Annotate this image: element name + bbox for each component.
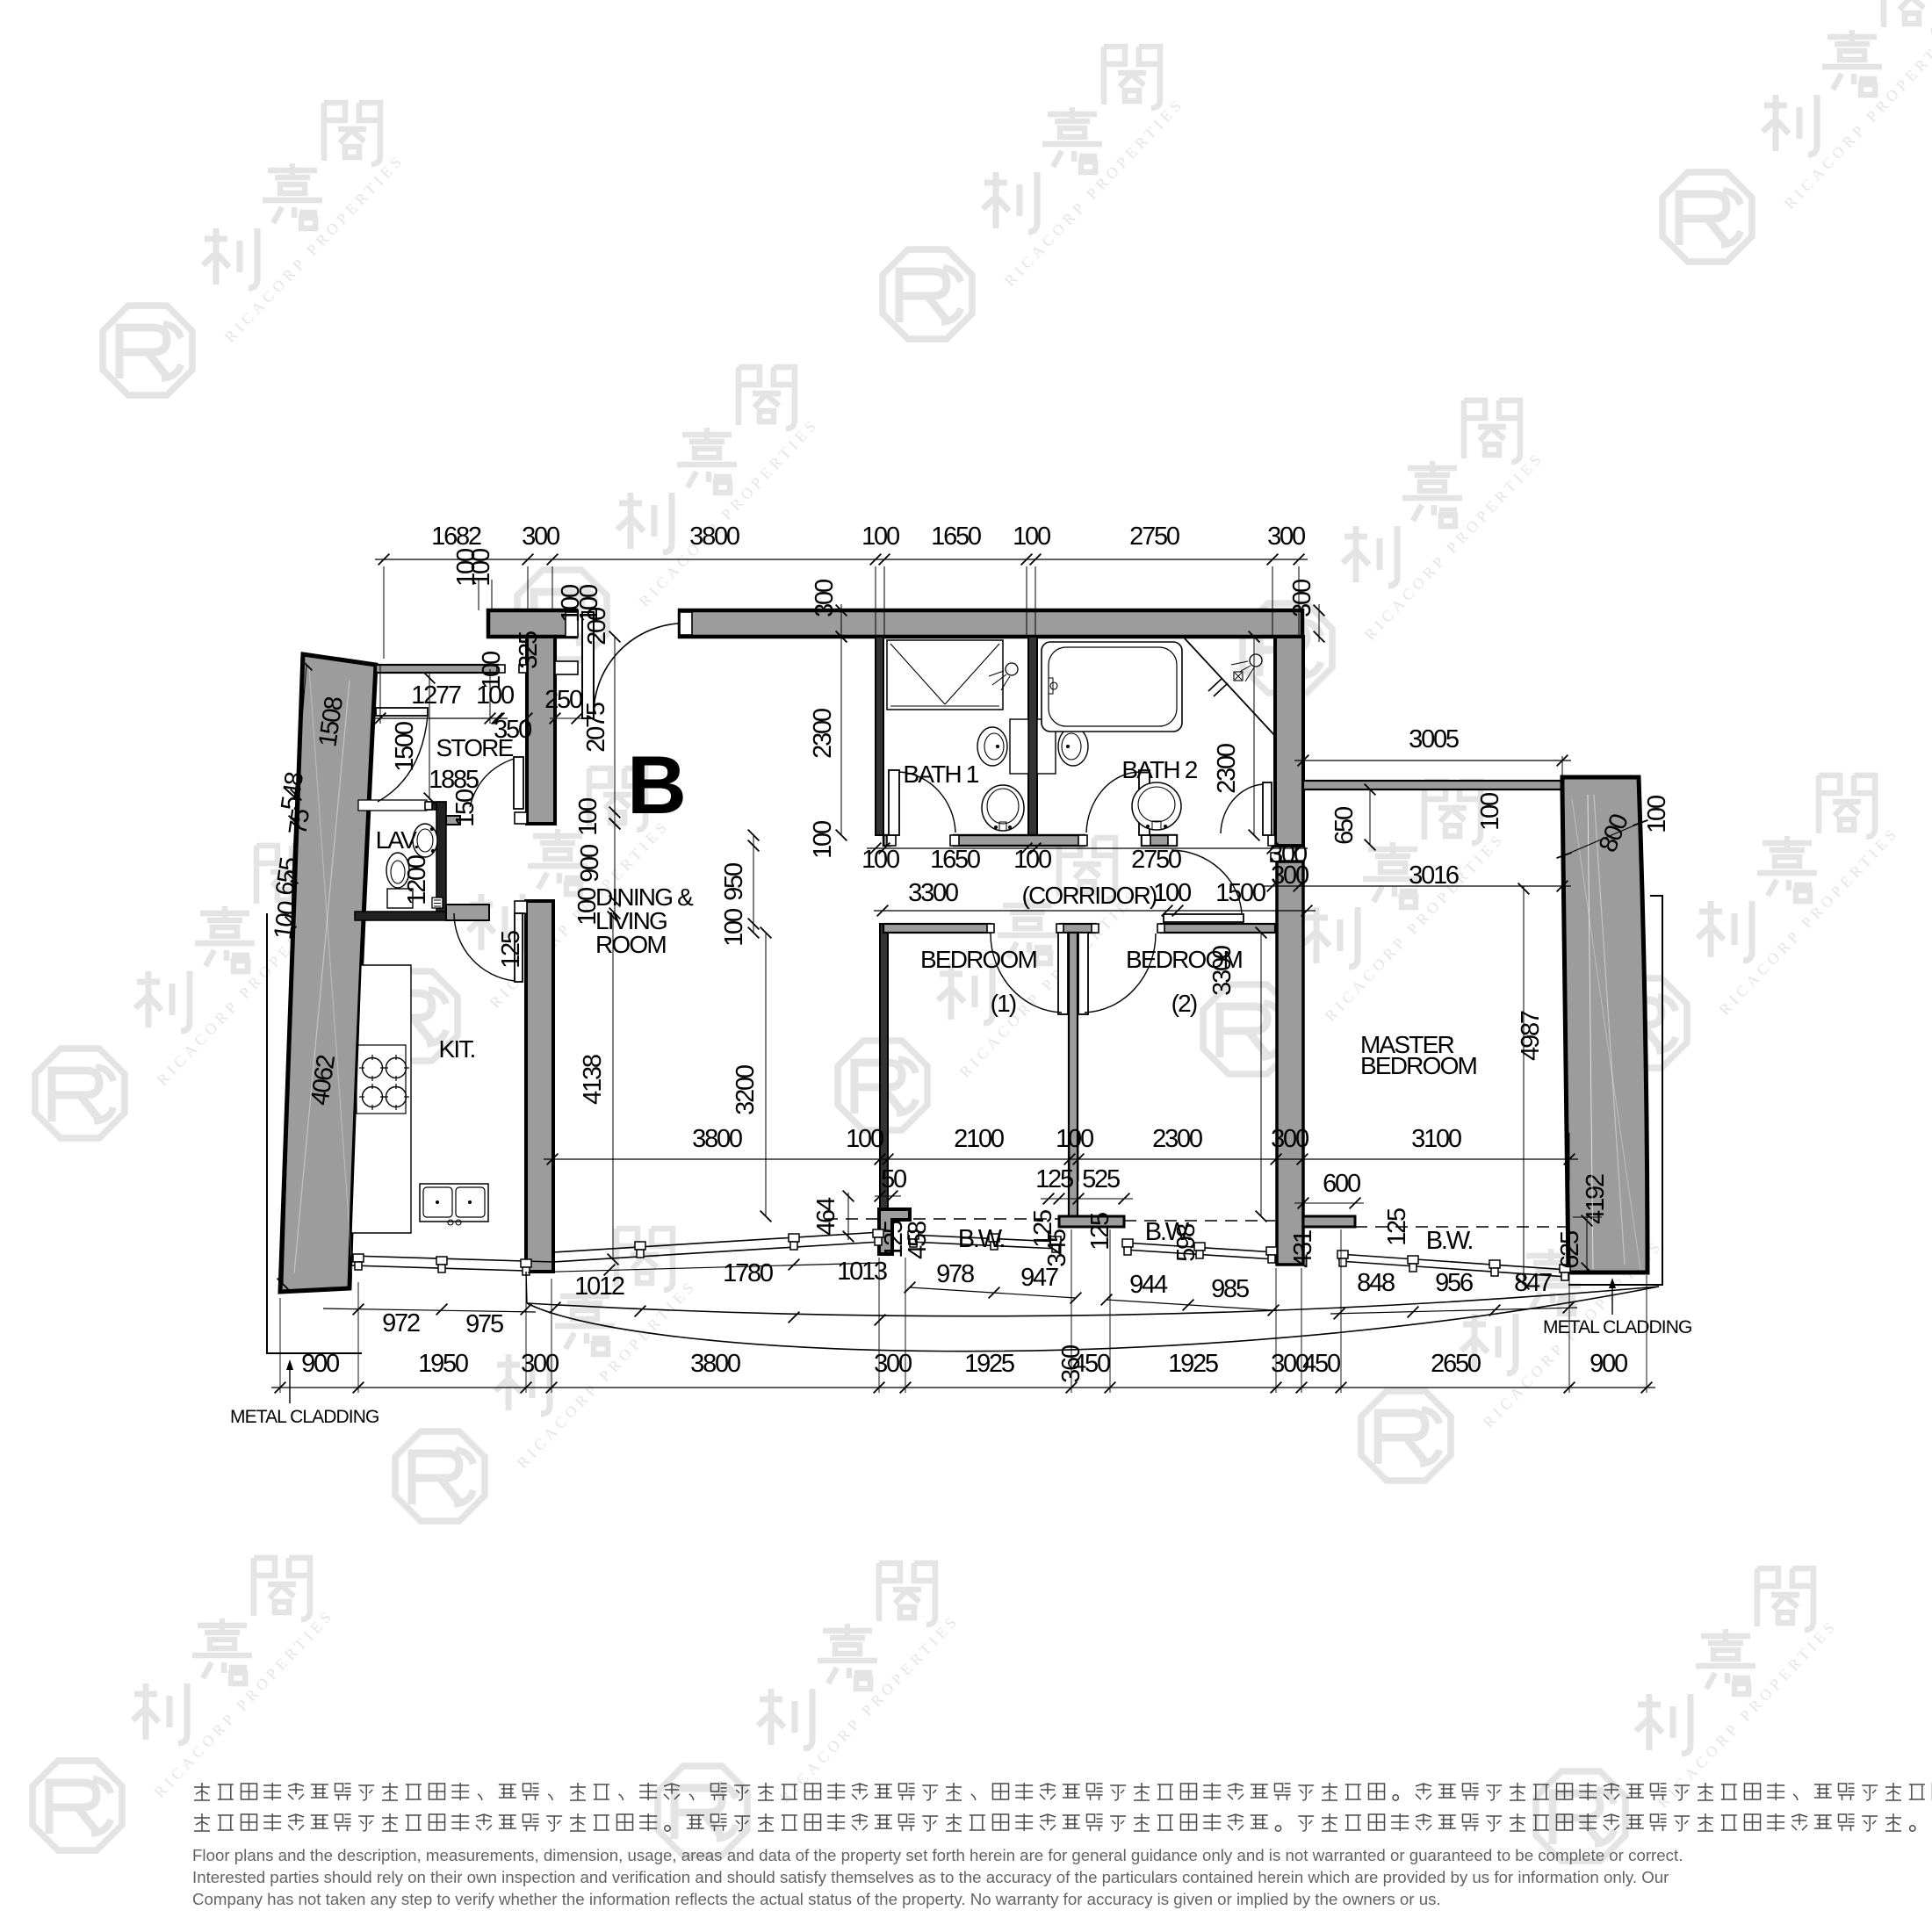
- svg-text:985: 985: [1211, 1275, 1249, 1303]
- svg-text:100: 100: [467, 549, 495, 587]
- svg-text:75: 75: [284, 808, 315, 837]
- svg-text:100: 100: [269, 900, 302, 941]
- svg-text:600: 600: [1323, 1170, 1360, 1198]
- svg-text:100: 100: [861, 523, 899, 551]
- svg-text:1200: 1200: [403, 855, 431, 905]
- svg-text:3800: 3800: [690, 1350, 740, 1378]
- svg-text:3016: 3016: [1409, 861, 1459, 890]
- svg-text:3300: 3300: [908, 879, 958, 907]
- svg-text:BATH 2: BATH 2: [1121, 756, 1197, 783]
- svg-text:900: 900: [576, 845, 604, 883]
- svg-text:ROOM: ROOM: [595, 931, 666, 958]
- svg-text:B: B: [627, 739, 685, 831]
- svg-text:431: 431: [1289, 1230, 1317, 1268]
- svg-text:METAL CLADDING: METAL CLADDING: [230, 1407, 378, 1427]
- svg-text:956: 956: [1435, 1269, 1473, 1297]
- svg-text:2650: 2650: [1431, 1350, 1481, 1378]
- svg-text:625: 625: [1556, 1231, 1584, 1269]
- svg-text:300: 300: [1267, 523, 1305, 551]
- svg-text:947: 947: [1020, 1264, 1058, 1292]
- svg-text:2750: 2750: [1131, 846, 1181, 874]
- svg-text:Interested parties should rely: Interested parties should rely on their …: [192, 1868, 1669, 1886]
- svg-text:BEDROOM: BEDROOM: [1360, 1052, 1477, 1079]
- svg-text:100: 100: [1153, 879, 1191, 907]
- svg-text:Floor plans and the descriptio: Floor plans and the description, measure…: [192, 1846, 1683, 1864]
- svg-text:975: 975: [465, 1310, 503, 1338]
- svg-text:125: 125: [1383, 1208, 1411, 1246]
- svg-text:300: 300: [1271, 861, 1308, 890]
- svg-text:848: 848: [1357, 1269, 1395, 1297]
- svg-text:1650: 1650: [931, 523, 981, 551]
- svg-text:300: 300: [811, 580, 839, 617]
- svg-text:2075: 2075: [582, 703, 610, 753]
- svg-text:3800: 3800: [689, 523, 739, 551]
- svg-text:3100: 3100: [1411, 1125, 1461, 1153]
- svg-text:200: 200: [583, 608, 611, 645]
- svg-text:B.W.: B.W.: [1426, 1227, 1473, 1255]
- svg-text:1500: 1500: [391, 722, 419, 772]
- svg-text:KIT.: KIT.: [438, 1035, 474, 1063]
- svg-text:1277: 1277: [411, 681, 461, 710]
- svg-text:1925: 1925: [1168, 1350, 1218, 1378]
- svg-text:2300: 2300: [809, 709, 837, 759]
- svg-text:4192: 4192: [1582, 1174, 1610, 1224]
- svg-text:(1): (1): [991, 990, 1016, 1017]
- svg-text:BEDROOM: BEDROOM: [1126, 946, 1243, 973]
- svg-text:3800: 3800: [692, 1125, 742, 1153]
- svg-text:300: 300: [522, 523, 559, 551]
- svg-text:900: 900: [1590, 1350, 1627, 1378]
- svg-text:345: 345: [1043, 1229, 1071, 1267]
- svg-text:BEDROOM: BEDROOM: [920, 946, 1037, 973]
- svg-text:300: 300: [521, 1350, 559, 1378]
- svg-text:100: 100: [1476, 793, 1504, 831]
- svg-text:250: 250: [544, 686, 582, 714]
- svg-text:4138: 4138: [579, 1055, 607, 1105]
- svg-text:(2): (2): [1171, 990, 1197, 1017]
- svg-text:650: 650: [1330, 807, 1359, 845]
- svg-text:100: 100: [1056, 1125, 1093, 1153]
- svg-text:458: 458: [904, 1222, 932, 1259]
- svg-text:4987: 4987: [1517, 1011, 1545, 1061]
- svg-text:1650: 1650: [930, 846, 980, 874]
- svg-text:150: 150: [451, 789, 479, 827]
- svg-text:1885: 1885: [429, 766, 479, 794]
- svg-text:450: 450: [1072, 1350, 1110, 1378]
- svg-text:2300: 2300: [1213, 744, 1241, 794]
- svg-text:2300: 2300: [1152, 1125, 1202, 1153]
- svg-text:598: 598: [1172, 1224, 1200, 1262]
- svg-text:2100: 2100: [954, 1125, 1004, 1153]
- svg-text:1012: 1012: [574, 1272, 624, 1301]
- svg-text:1925: 1925: [964, 1350, 1014, 1378]
- svg-text:944: 944: [1129, 1271, 1168, 1299]
- svg-text:548: 548: [276, 771, 309, 812]
- svg-text:50: 50: [881, 1165, 906, 1193]
- svg-text:100: 100: [1643, 796, 1671, 833]
- svg-text:525: 525: [1082, 1165, 1120, 1193]
- svg-text:950: 950: [720, 863, 748, 901]
- svg-text:300: 300: [1288, 580, 1316, 617]
- svg-text:464: 464: [812, 1197, 840, 1236]
- svg-text:100: 100: [574, 798, 602, 836]
- svg-text:100: 100: [1013, 846, 1051, 874]
- svg-text:1500: 1500: [1215, 879, 1265, 907]
- svg-text:125: 125: [1035, 1165, 1073, 1193]
- svg-text:STORE: STORE: [436, 734, 514, 761]
- svg-text:300: 300: [1271, 1125, 1308, 1153]
- svg-text:847: 847: [1514, 1269, 1552, 1297]
- svg-text:100: 100: [846, 1125, 883, 1153]
- svg-text:655: 655: [270, 856, 304, 898]
- svg-text:1950: 1950: [418, 1350, 468, 1378]
- svg-text:900: 900: [301, 1350, 339, 1378]
- svg-text:BATH 1: BATH 1: [903, 761, 978, 788]
- svg-text:972: 972: [382, 1309, 420, 1337]
- svg-text:B.W.: B.W.: [958, 1225, 1005, 1253]
- svg-text:METAL CLADDING: METAL CLADDING: [1543, 1317, 1691, 1337]
- svg-text:1780: 1780: [723, 1259, 773, 1287]
- svg-text:Company has not taken any step: Company has not taken any step to verify…: [192, 1890, 1441, 1908]
- svg-text:300: 300: [874, 1350, 912, 1378]
- svg-text:100: 100: [720, 909, 748, 947]
- svg-text:1682: 1682: [431, 523, 481, 551]
- svg-text:3005: 3005: [1409, 725, 1459, 753]
- svg-text:100: 100: [476, 681, 514, 710]
- svg-text:2750: 2750: [1129, 523, 1179, 551]
- svg-text:450: 450: [1302, 1350, 1340, 1378]
- svg-text:100: 100: [809, 821, 837, 859]
- svg-text:100: 100: [1013, 523, 1050, 551]
- svg-text:978: 978: [936, 1260, 974, 1288]
- svg-text:325: 325: [515, 631, 543, 669]
- svg-text:LAV.: LAV.: [376, 826, 419, 854]
- svg-text:3200: 3200: [732, 1065, 760, 1115]
- svg-text:125: 125: [497, 931, 525, 969]
- svg-text:(CORRIDOR): (CORRIDOR): [1021, 882, 1157, 909]
- svg-text:100: 100: [861, 846, 899, 874]
